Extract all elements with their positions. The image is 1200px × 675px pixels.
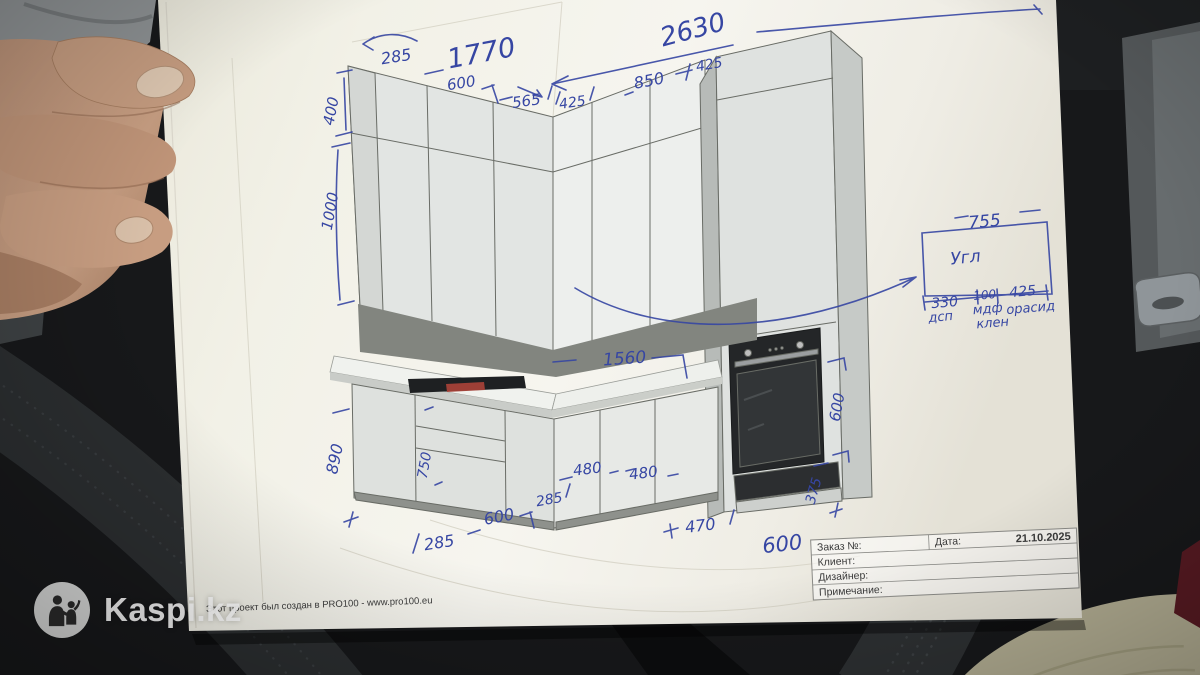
sketch-label: Угл bbox=[949, 246, 981, 269]
sketch-seg3-value: 425 bbox=[1009, 283, 1037, 301]
dim-counter-length: 1560 bbox=[602, 348, 647, 371]
dim-base-door-2: 480 bbox=[628, 462, 659, 483]
scene-svg: 285 1770 600 565 425 850 425 2630 400 10… bbox=[0, 0, 1200, 675]
title-block-date-value: 21.10.2025 bbox=[1015, 531, 1071, 545]
title-block-client-label: Клиент: bbox=[817, 555, 855, 569]
title-block-date-label: Дата: bbox=[935, 535, 962, 548]
oven-knob-left bbox=[745, 350, 752, 357]
sketch-seg2-note2: клен bbox=[976, 315, 1010, 333]
sketch-seg1-note: дсп bbox=[927, 309, 954, 326]
oven-door-glass bbox=[737, 360, 820, 467]
dim-base-door-3: 470 bbox=[684, 514, 717, 537]
title-block-designer-label: Дизайнер: bbox=[818, 569, 868, 583]
title-block: Заказ №: Дата: 21.10.2025 Клиент: Дизайн… bbox=[811, 528, 1079, 600]
tall-oven-unit bbox=[700, 31, 872, 518]
oven-knob-right bbox=[797, 342, 804, 349]
sketch-width: 755 bbox=[968, 211, 1002, 234]
dim-base-door-1: 480 bbox=[572, 458, 603, 479]
door-handle bbox=[1135, 273, 1200, 326]
photo-kitchen-plan-in-car: 285 1770 600 565 425 850 425 2630 400 10… bbox=[0, 0, 1200, 675]
built-in-oven bbox=[729, 328, 824, 474]
dim-oven-unit-width: 600 bbox=[761, 530, 803, 558]
title-block-order-label: Заказ №: bbox=[817, 540, 862, 554]
